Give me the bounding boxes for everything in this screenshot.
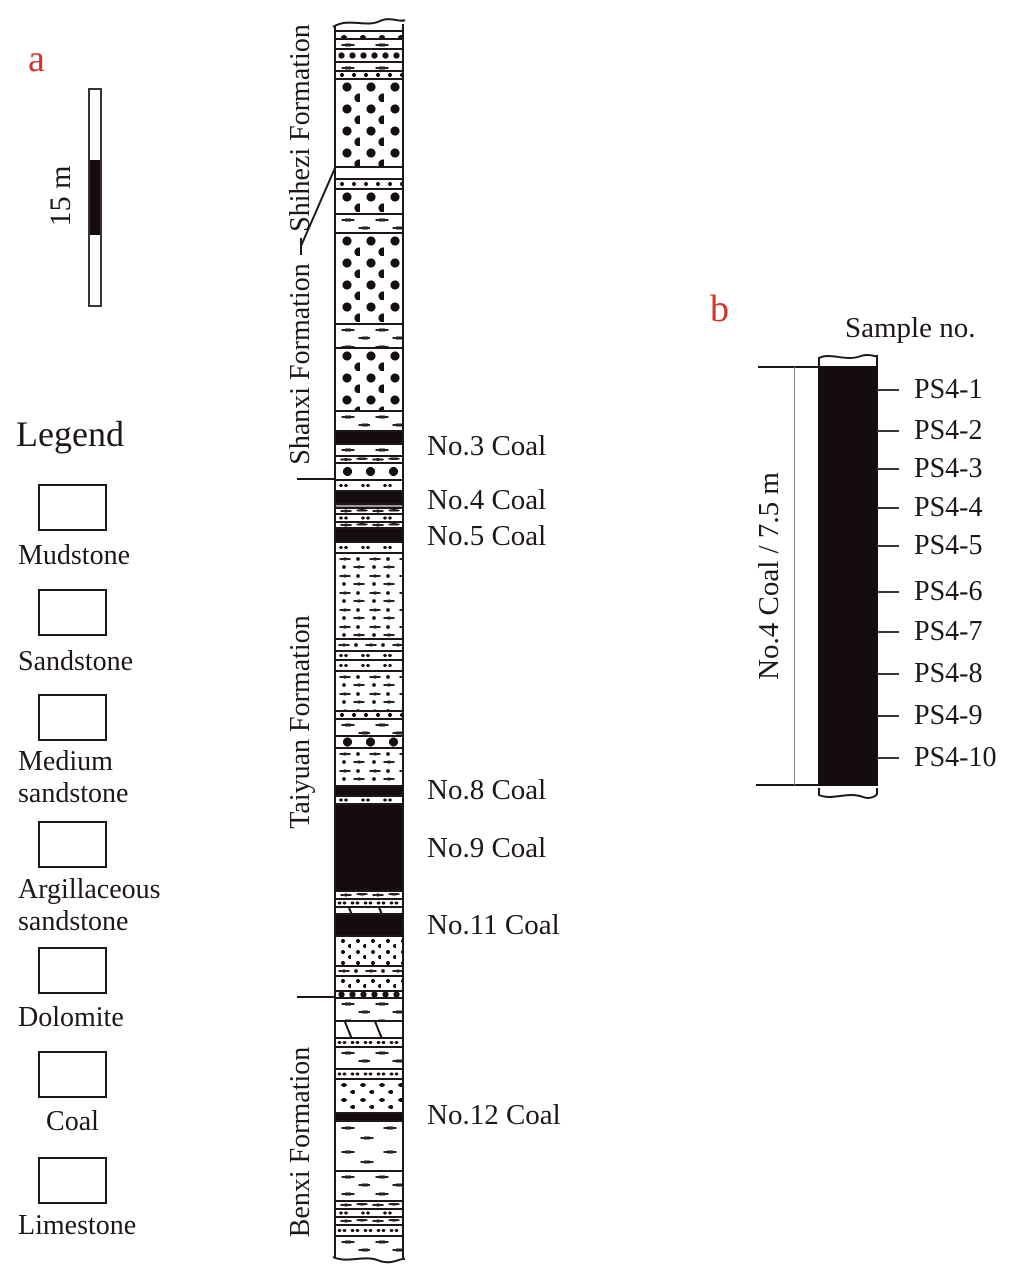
layer-mud bbox=[336, 213, 402, 232]
formation-boundary-tick bbox=[297, 478, 336, 480]
formation-boundary-connector bbox=[295, 158, 339, 266]
layer-oo-dense bbox=[336, 898, 402, 906]
column-top-wavy-edge bbox=[330, 12, 408, 30]
panel-b-letter: b bbox=[710, 290, 729, 328]
layer-boxes bbox=[336, 1078, 402, 1112]
sample-tick-PS4-9 bbox=[877, 715, 899, 717]
layer-mud bbox=[336, 443, 402, 455]
legend-label-medium-sandstone: Medium bbox=[18, 746, 113, 778]
legend: MudstoneSandstoneMediumsandstoneArgillac… bbox=[0, 0, 220, 1287]
legend-label-medium-sandstone: sandstone bbox=[18, 778, 128, 810]
layer-med bbox=[336, 935, 402, 965]
layer-arg bbox=[336, 670, 402, 710]
formation-label: Taiyuan Formation bbox=[285, 594, 317, 850]
legend-label-argillaceous-sandstone: Argillaceous bbox=[18, 874, 161, 906]
layer-mud bbox=[336, 38, 402, 48]
layer-arg-thin bbox=[336, 965, 402, 975]
layer-mud bbox=[336, 61, 402, 70]
layer-oo bbox=[336, 541, 402, 552]
layer-dolo bbox=[336, 906, 402, 913]
legend-swatch-sandstone bbox=[38, 589, 107, 636]
coal-label: No.11 Coal bbox=[427, 908, 560, 942]
layer-oo bbox=[336, 1208, 402, 1216]
layer-oo bbox=[336, 659, 402, 670]
legend-swatch-argillaceous-sandstone bbox=[38, 821, 107, 868]
layer-coal bbox=[336, 490, 402, 503]
layer-blank bbox=[336, 166, 402, 178]
sample-tick-PS4-6 bbox=[877, 591, 899, 593]
layer-mud bbox=[336, 997, 402, 1020]
sample-tick-PS4-7 bbox=[877, 631, 899, 633]
formation-label: Benxi Formation bbox=[285, 1017, 317, 1267]
formation-boundary-tick bbox=[297, 996, 336, 998]
layer-coal bbox=[336, 1112, 402, 1120]
layer-coal bbox=[336, 785, 402, 795]
column-bottom-wavy-edge bbox=[330, 1250, 408, 1268]
layer-sand1 bbox=[336, 735, 402, 747]
layer-oo-dense bbox=[336, 1037, 402, 1046]
stratigraphic-column bbox=[334, 24, 404, 1258]
layer-arg bbox=[336, 552, 402, 638]
sample-tick-PS4-3 bbox=[877, 468, 899, 470]
coal-label: No.8 Coal bbox=[427, 773, 546, 807]
layer-sand bbox=[336, 188, 402, 213]
legend-label-argillaceous-sandstone: sandstone bbox=[18, 906, 128, 938]
sample-tick-PS4-2 bbox=[877, 430, 899, 432]
layer-mud bbox=[336, 1046, 402, 1068]
layer-arg bbox=[336, 747, 402, 785]
layer-coal bbox=[336, 913, 402, 935]
sample-name-PS4-1: PS4-1 bbox=[914, 374, 982, 406]
sample-name-PS4-5: PS4-5 bbox=[914, 530, 982, 562]
sample-name-PS4-4: PS4-4 bbox=[914, 492, 982, 524]
sample-name-PS4-2: PS4-2 bbox=[914, 415, 982, 447]
layer-coal bbox=[336, 527, 402, 541]
sample-tick-PS4-1 bbox=[877, 389, 899, 391]
layer-mud-thin bbox=[336, 455, 402, 462]
sample-no-header: Sample no. bbox=[845, 312, 976, 344]
layer-mud-thin bbox=[336, 890, 402, 898]
layer-sand bbox=[336, 232, 402, 323]
layer-mud bbox=[336, 410, 402, 430]
sample-tick-PS4-5 bbox=[877, 545, 899, 547]
legend-swatch-medium-sandstone bbox=[38, 694, 107, 741]
layer-dotrow bbox=[336, 990, 402, 997]
layer-dolo bbox=[336, 1020, 402, 1037]
sample-name-PS4-9: PS4-9 bbox=[914, 700, 982, 732]
layer-med1 bbox=[336, 710, 402, 718]
legend-label-dolomite: Dolomite bbox=[18, 1002, 124, 1034]
legend-label-mudstone: Mudstone bbox=[18, 540, 130, 572]
legend-label-sandstone: Sandstone bbox=[18, 646, 133, 678]
layer-coal bbox=[336, 803, 402, 890]
layer-oo-dense bbox=[336, 1068, 402, 1078]
layer-oo bbox=[336, 650, 402, 659]
legend-swatch-limestone bbox=[38, 1157, 107, 1204]
layer-oo-dense bbox=[336, 1224, 402, 1235]
coal-label: No.9 Coal bbox=[427, 831, 546, 865]
legend-label-coal: Coal bbox=[38, 1106, 107, 1138]
layer-med1 bbox=[336, 178, 402, 188]
coal-label: No.4 Coal bbox=[427, 483, 546, 517]
sample-name-PS4-7: PS4-7 bbox=[914, 616, 982, 648]
legend-swatch-mudstone bbox=[38, 484, 107, 531]
coal-bar-bottom-wavy-edge bbox=[817, 786, 879, 804]
stratigraphic-figure: a 15 m Legend MudstoneSandstoneMediumsan… bbox=[0, 0, 1024, 1287]
legend-swatch-coal bbox=[38, 1051, 107, 1098]
formation-label: Shanxi Formation bbox=[285, 250, 317, 478]
seam-bracket-vertical-line bbox=[794, 367, 795, 785]
coal-bar-top-wavy-edge bbox=[817, 350, 879, 368]
sample-name-PS4-6: PS4-6 bbox=[914, 576, 982, 608]
layer-dotrow bbox=[336, 48, 402, 61]
layer-mud bbox=[336, 323, 402, 347]
layer-oo bbox=[336, 513, 402, 521]
coal-label: No.5 Coal bbox=[427, 519, 546, 553]
sample-tick-PS4-10 bbox=[877, 757, 899, 759]
layer-mud bbox=[336, 1170, 402, 1200]
sample-name-PS4-10: PS4-10 bbox=[914, 742, 996, 774]
layer-med1 bbox=[336, 70, 402, 78]
layer-mud bbox=[336, 718, 402, 735]
layer-sand bbox=[336, 347, 402, 410]
layer-med bbox=[336, 975, 402, 990]
sample-name-PS4-8: PS4-8 bbox=[914, 658, 982, 690]
layer-mud-thin bbox=[336, 1200, 402, 1208]
layer-oo bbox=[336, 479, 402, 490]
coal-label: No.3 Coal bbox=[427, 429, 546, 463]
layer-mud-sparse bbox=[336, 1120, 402, 1170]
layer-sand1 bbox=[336, 462, 402, 479]
layer-sand bbox=[336, 78, 402, 166]
layer-coal bbox=[336, 430, 402, 443]
layer-mud-thin bbox=[336, 1216, 402, 1224]
sample-tick-PS4-8 bbox=[877, 673, 899, 675]
layer-arg-thin bbox=[336, 638, 402, 650]
legend-label-limestone: Limestone bbox=[18, 1210, 136, 1242]
sample-tick-PS4-4 bbox=[877, 507, 899, 509]
no4-coal-bar bbox=[818, 366, 878, 786]
layer-boxes bbox=[336, 30, 402, 38]
coal-label: No.12 Coal bbox=[427, 1098, 561, 1132]
sample-name-PS4-3: PS4-3 bbox=[914, 453, 982, 485]
layer-oo bbox=[336, 795, 402, 803]
no4-coal-seam-label: No.4 Coal / 7.5 m bbox=[753, 366, 785, 786]
legend-swatch-dolomite bbox=[38, 947, 107, 994]
